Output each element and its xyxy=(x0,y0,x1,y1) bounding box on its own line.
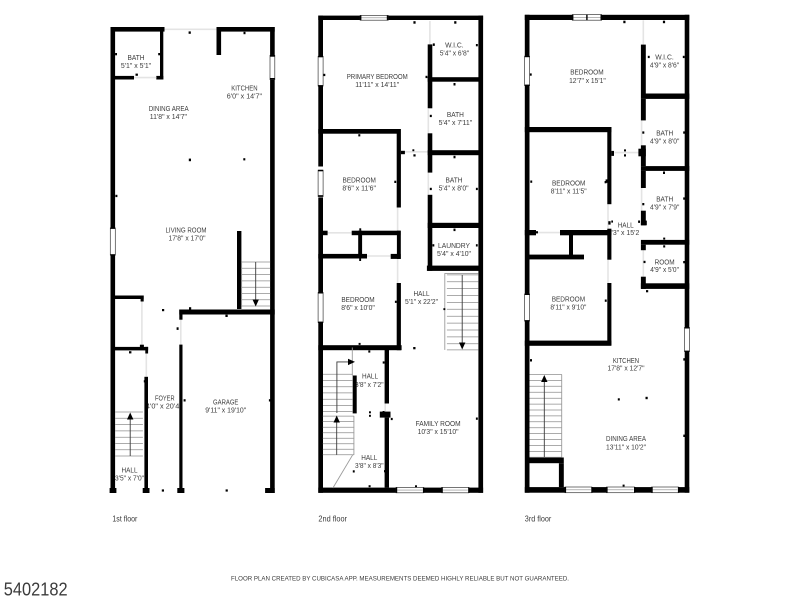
svg-text:W.I.C.: W.I.C. xyxy=(655,52,674,61)
svg-text:HALL: HALL xyxy=(362,372,378,381)
svg-text:BATH: BATH xyxy=(656,128,673,137)
svg-text:BEDROOM: BEDROOM xyxy=(341,295,374,304)
svg-text:BATH: BATH xyxy=(447,110,464,119)
svg-text:FAMILY ROOM: FAMILY ROOM xyxy=(416,419,461,428)
svg-text:HALL: HALL xyxy=(618,221,634,230)
svg-text:GARAGE: GARAGE xyxy=(213,398,239,407)
svg-text:BEDROOM: BEDROOM xyxy=(552,178,585,187)
svg-text:BATH: BATH xyxy=(446,176,463,185)
svg-text:PRIMARY BEDROOM: PRIMARY BEDROOM xyxy=(347,72,408,81)
svg-text:W.I.C.: W.I.C. xyxy=(445,40,464,49)
svg-text:5'4" x 6'8": 5'4" x 6'8" xyxy=(440,51,470,58)
svg-text:LAUNDRY: LAUNDRY xyxy=(438,241,470,250)
svg-text:BATH: BATH xyxy=(128,53,145,62)
svg-text:5'1" x 22'2": 5'1" x 22'2" xyxy=(405,299,438,306)
svg-text:FOYER: FOYER xyxy=(155,394,175,403)
svg-text:'3" x 15'2: '3" x 15'2 xyxy=(612,230,640,237)
svg-text:KITCHEN: KITCHEN xyxy=(613,356,639,365)
svg-text:BEDROOM: BEDROOM xyxy=(570,68,603,77)
svg-text:8'6" x 10'0": 8'6" x 10'0" xyxy=(341,305,375,312)
svg-text:3'8" x 8'3": 3'8" x 8'3" xyxy=(355,463,384,470)
svg-text:BEDROOM: BEDROOM xyxy=(343,176,376,185)
svg-text:5'1" x 5'1": 5'1" x 5'1" xyxy=(121,63,152,70)
svg-text:3'5" x 7'0": 3'5" x 7'0" xyxy=(115,476,144,483)
svg-text:1st floor: 1st floor xyxy=(112,513,137,523)
svg-text:4'9" x 5'0": 4'9" x 5'0" xyxy=(650,267,679,274)
svg-text:4'9" x 8'0": 4'9" x 8'0" xyxy=(650,139,680,146)
svg-text:13'11" x 10'2": 13'11" x 10'2" xyxy=(606,444,646,451)
svg-text:10'3" x 15'10": 10'3" x 15'10" xyxy=(418,429,459,436)
svg-text:17'8" x 12'7": 17'8" x 12'7" xyxy=(608,366,645,373)
svg-text:17'8" x 17'0": 17'8" x 17'0" xyxy=(169,236,206,243)
svg-text:4'0" x 20'4": 4'0" x 20'4" xyxy=(146,404,183,411)
svg-text:FLOOR PLAN CREATED BY CUBICASA: FLOOR PLAN CREATED BY CUBICASA APP. MEAS… xyxy=(231,576,569,583)
svg-text:5'4" x 7'11": 5'4" x 7'11" xyxy=(439,120,473,127)
svg-text:4'9" x 8'6": 4'9" x 8'6" xyxy=(650,62,680,69)
svg-text:3rd floor: 3rd floor xyxy=(525,513,552,523)
svg-text:6'0" x 14'7": 6'0" x 14'7" xyxy=(227,93,263,100)
svg-text:5'4" x 4'10": 5'4" x 4'10" xyxy=(437,251,472,258)
svg-text:LIVING ROOM: LIVING ROOM xyxy=(166,226,207,235)
svg-text:HALL: HALL xyxy=(361,453,377,462)
svg-text:BATH: BATH xyxy=(656,194,673,203)
svg-text:HALL: HALL xyxy=(122,466,138,475)
svg-text:9'11" x 19'10": 9'11" x 19'10" xyxy=(205,408,247,415)
svg-text:11'11" x 14'11": 11'11" x 14'11" xyxy=(355,82,400,89)
svg-text:4'9" x 7'9": 4'9" x 7'9" xyxy=(650,204,680,211)
svg-text:12'7" x 15'1": 12'7" x 15'1" xyxy=(569,78,606,85)
svg-text:HALL: HALL xyxy=(414,289,430,298)
svg-text:ROOM: ROOM xyxy=(655,258,675,267)
svg-text:DINING AREA: DINING AREA xyxy=(149,104,189,113)
svg-text:11'8" x 14'7": 11'8" x 14'7" xyxy=(150,114,188,121)
svg-text:8'11" x 9'10": 8'11" x 9'10" xyxy=(550,304,586,311)
svg-text:DINING AREA: DINING AREA xyxy=(606,434,646,443)
svg-text:5402182: 5402182 xyxy=(4,579,68,600)
svg-text:8'11" x 11'5": 8'11" x 11'5" xyxy=(551,188,587,195)
svg-text:2nd floor: 2nd floor xyxy=(318,513,347,523)
svg-text:KITCHEN: KITCHEN xyxy=(231,83,257,92)
svg-text:5'4" x 8'0": 5'4" x 8'0" xyxy=(439,186,470,193)
svg-text:BEDROOM: BEDROOM xyxy=(552,295,585,304)
svg-text:3'8" x 7'2": 3'8" x 7'2" xyxy=(355,382,384,389)
svg-text:8'6" x 11'6": 8'6" x 11'6" xyxy=(342,186,376,193)
